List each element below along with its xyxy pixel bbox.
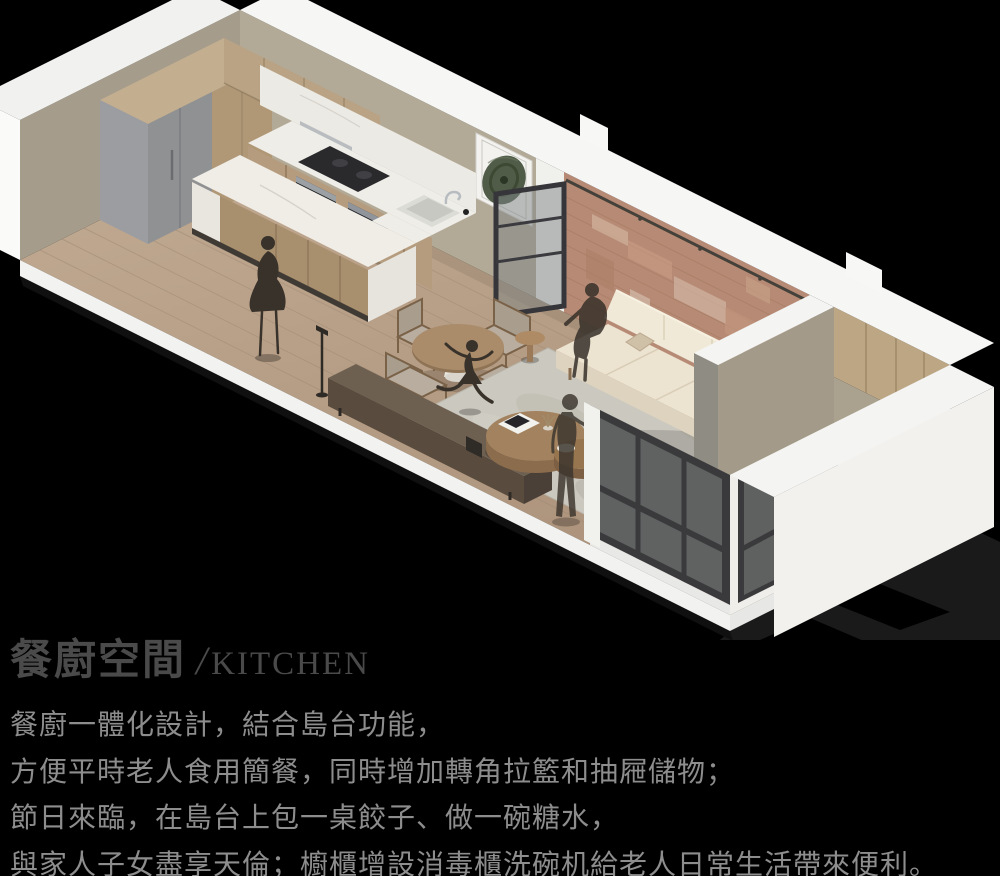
glass-partition-door (496, 184, 564, 316)
caption-block: 餐廚空間/KITCHEN 餐廚一體化設計，結合島台功能， 方便平時老人食用簡餐，… (10, 626, 990, 876)
title-chinese: 餐廚空間 (10, 638, 186, 684)
description-line: 與家人子女盡享天倫；櫥櫃增設消毒櫃洗碗机給老人日常生活帶來便利。 (10, 843, 990, 876)
description-line: 節日來臨，在島台上包一桌餃子、做一碗糖水， (10, 796, 990, 843)
description-line: 方便平時老人食用簡餐，同時增加轉角拉籃和抽屜儲物； (10, 750, 990, 797)
section-title: 餐廚空間/KITCHEN (10, 626, 990, 687)
corner-post (584, 402, 600, 548)
presentation-page: 餐廚空間/KITCHEN 餐廚一體化設計，結合島台功能， 方便平時老人食用簡餐，… (0, 0, 1000, 876)
description-text: 餐廚一體化設計，結合島台功能， 方便平時老人食用簡餐，同時增加轉角拉籃和抽屜儲物… (10, 703, 990, 876)
description-line: 餐廚一體化設計，結合島台功能， (10, 703, 990, 750)
axonometric-interior-rendering (0, 0, 1000, 640)
title-english: KITCHEN (211, 646, 370, 682)
title-divider: / (196, 638, 207, 683)
